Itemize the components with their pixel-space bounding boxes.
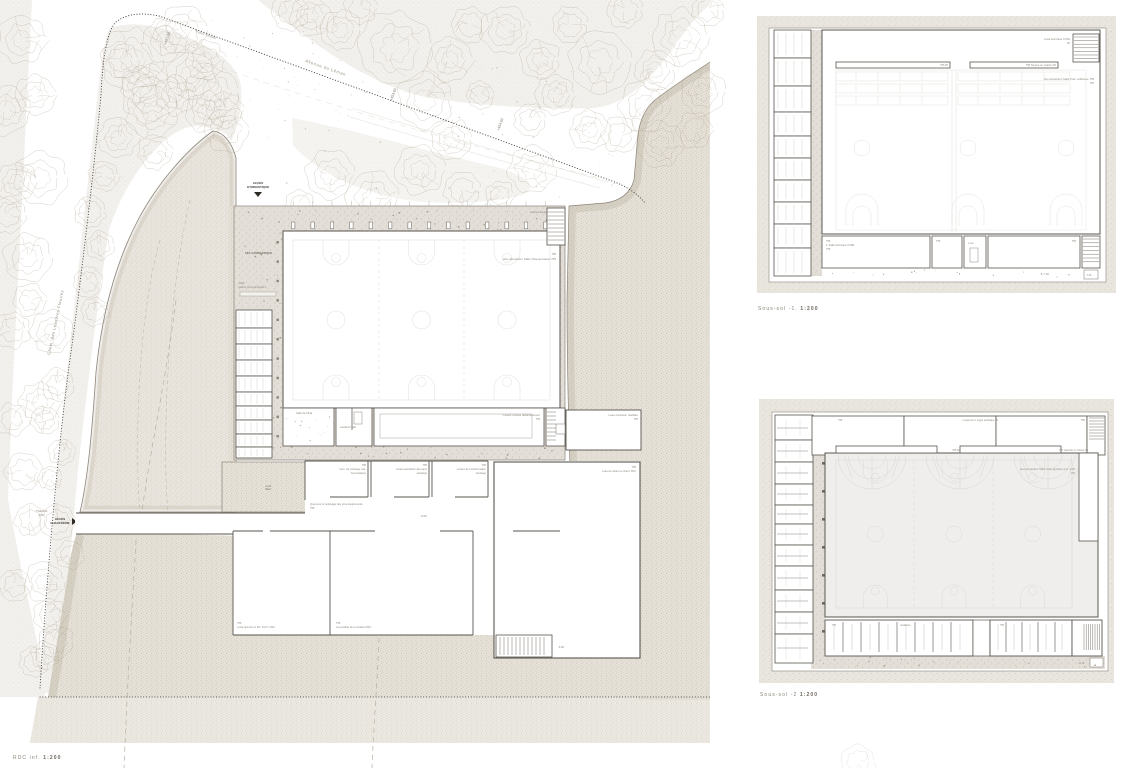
svg-text:stockage: stockage (417, 471, 428, 475)
svg-text:755: 755 (1090, 81, 1095, 85)
svg-text:-8 -7.60: -8 -7.60 (1040, 272, 1049, 276)
svg-text:stockage: stockage (476, 471, 487, 475)
svg-text:Sous-sol -1. 1:200: Sous-sol -1. 1:200 (758, 306, 819, 312)
svg-text:755: 755 (536, 417, 541, 421)
svg-text:Vestiaires: Vestiaires (900, 624, 911, 627)
svg-text:755: 755 (826, 247, 831, 251)
svg-text:CHAUFFERIE: CHAUFFERIE (50, 521, 69, 525)
svg-text:Local exploitation des eaux: Local exploitation des eaux (396, 467, 428, 471)
svg-text:+0.00: +0.00 (238, 281, 245, 285)
svg-text:755: 755 (482, 463, 487, 467)
svg-text:Salle de Péda: Salle de Péda (296, 411, 313, 415)
svg-text:Lavabos halle: Lavabos halle (340, 425, 357, 429)
svg-text:755: 755 (838, 418, 843, 422)
svg-text:755: 755 (362, 463, 367, 467)
svg-text:755 90: 755 90 (940, 63, 948, 67)
svg-text:755 90: 755 90 (952, 448, 960, 452)
svg-text:La possible de la création PAC: La possible de la création PAC (336, 625, 371, 629)
svg-text:Couloir rentrée débarquement: Couloir rentrée débarquement (503, 413, 541, 417)
svg-text:755: 755 (237, 621, 242, 625)
svg-text:-5.96: -5.96 (558, 645, 564, 649)
svg-text:Gerbeur-Neau: Gerbeur-Neau (530, 210, 547, 214)
svg-text:755: 755 (310, 506, 315, 510)
svg-text:Locaux de transformation: Locaux de transformation (457, 467, 487, 471)
svg-text:Leau de traiter ou chauf. PAC: Leau de traiter ou chauf. PAC (602, 469, 636, 473)
svg-text:Leau occlusion réathlée: Leau occlusion réathlée (608, 413, 638, 417)
svg-text:Local pour l engin artistique: Local pour l engin artistique 90 (963, 418, 999, 422)
svg-text:-11.30: -11.30 (1078, 662, 1085, 665)
svg-text:RDC inf. 1:200: RDC inf. 1:200 (13, 755, 61, 761)
svg-text:Talus: Talus (265, 488, 271, 491)
svg-text:755: 755 (936, 239, 941, 243)
svg-text:Local réservé en fibr. 3/4T x: Local réservé en fibr. 3/4T x HSC (237, 625, 275, 629)
svg-text:Sous-sol -2 1:200: Sous-sol -2 1:200 (760, 692, 818, 698)
svg-text:755 Gauche en visites 90: 755 Gauche en visites 90 (1059, 448, 1089, 452)
svg-text:755: 755 (1081, 418, 1086, 422)
svg-text:755: 755 (826, 239, 831, 243)
svg-text:755: 755 (552, 252, 557, 256)
svg-text:L esc: L esc (968, 242, 974, 245)
svg-text:Gymnastique: Gymnastique (351, 471, 367, 475)
svg-text:755: 755 (634, 417, 639, 421)
svg-text:755 Tempré en rotation 90: 755 Tempré en rotation 90 (1026, 63, 1057, 67)
svg-text:755: 755 (832, 624, 837, 627)
svg-text:TISELAIS: TISELAIS (36, 509, 48, 513)
svg-text:TEC GYMNASTIQUE: TEC GYMNASTIQUE (245, 251, 272, 255)
svg-text:Quai pour le nettoyage des gro: Quai pour le nettoyage des gros équipeme… (310, 502, 363, 506)
svg-text:-6.80: -6.80 (38, 513, 44, 517)
svg-text:755: 755 (423, 463, 428, 467)
svg-text:-0.60: -0.60 (420, 514, 427, 518)
svg-text:755: 755 (336, 621, 341, 625)
svg-text:Com. de stockage mat.: Com. de stockage mat. (339, 467, 366, 471)
svg-text:Aire dévolution Salle Trap. a: Aire dévolution Salle Trap. artistique 7… (1044, 77, 1095, 81)
svg-text:755: 755 (1000, 624, 1005, 627)
svg-text:755: 755 (1072, 239, 1077, 243)
svg-text:755: 755 (1071, 471, 1076, 475)
svg-text:Aire dévolution Salle Téla-ar: Aire dévolution Salle Téla-armasios 755 (503, 257, 556, 261)
svg-text:755: 755 (632, 465, 637, 469)
svg-text:-7.60: -7.60 (1086, 274, 1092, 277)
svg-text:Local technique CVSE: Local technique CVSE (1044, 37, 1070, 41)
svg-text:F. Salle technique CVSE: F. Salle technique CVSE (826, 243, 855, 247)
svg-text:GYMNASTIQUE: GYMNASTIQUE (247, 185, 269, 189)
